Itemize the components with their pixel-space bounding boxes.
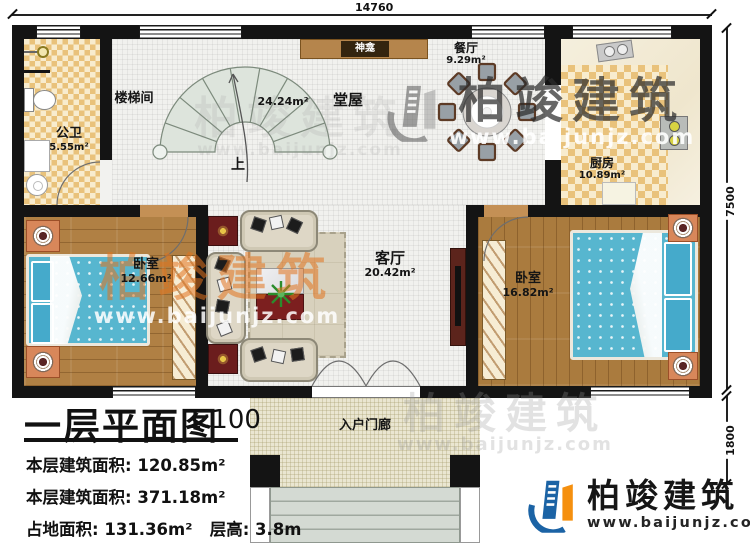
- plant-icon: [268, 281, 294, 307]
- room-label-stairwell: 楼梯间: [114, 92, 153, 107]
- brand-glyph-icon: [526, 476, 578, 534]
- room-label-bedroom-left: 卧室 12.66m²: [120, 258, 171, 285]
- room-label-dining: 餐厅 9.29m²: [446, 42, 485, 67]
- room-label-living: 客厅 20.42m²: [364, 250, 415, 279]
- brand-url: www.baijunjz.com: [587, 515, 750, 531]
- room-label-hall: 堂屋: [333, 92, 363, 109]
- brand-logo: 柏竣建筑 www.baijunjz.com: [526, 476, 750, 534]
- floor-plan-sheet: 神龛: [0, 0, 750, 554]
- room-label-bathroom: 公卫 5.55m²: [49, 127, 88, 153]
- dining-set: [439, 64, 535, 160]
- plan-scale: 1:100: [186, 405, 261, 435]
- room-label-kitchen: 厨房 10.89m²: [579, 157, 625, 182]
- dimension-depth: 7500: [724, 183, 737, 220]
- dimension-width: 14760: [352, 1, 396, 14]
- stairs-up-label: 上: [231, 158, 245, 174]
- brand-name: 柏竣建筑: [587, 479, 739, 512]
- room-label-bedroom-right: 卧室 16.82m²: [502, 272, 553, 299]
- dimension-porch-depth: 1800: [724, 422, 737, 459]
- title-underline: [24, 438, 238, 442]
- hall-area-label: 24.24m²: [257, 96, 308, 108]
- dimension-line: [12, 14, 712, 16]
- stat-row: 占地面积: 131.36m² 层高: 3.8m: [26, 516, 301, 540]
- stat-row: 本层建筑面积: 371.18m²: [26, 484, 225, 508]
- stat-row: 本层建筑面积: 120.85m²: [26, 452, 225, 476]
- staircase: [153, 67, 337, 159]
- room-label-porch: 入户门廊: [339, 419, 391, 434]
